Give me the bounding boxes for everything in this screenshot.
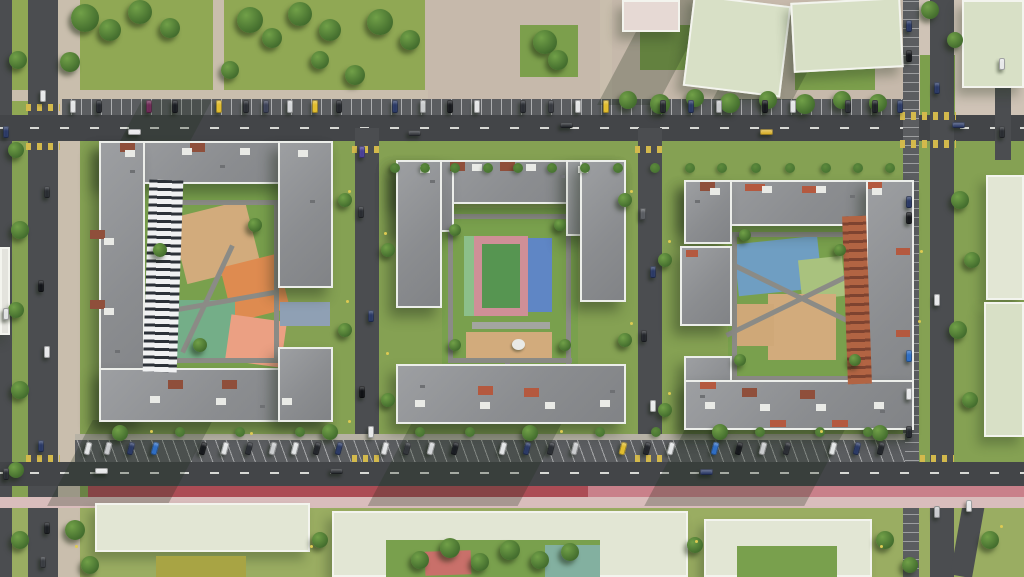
bush <box>295 427 305 437</box>
crosswalk <box>635 455 665 462</box>
terracotta-parapet <box>832 420 848 427</box>
car <box>40 556 46 568</box>
tree <box>947 32 963 48</box>
flower-dot <box>346 300 349 303</box>
bush <box>420 163 430 173</box>
tree <box>962 392 978 408</box>
roof-box <box>182 148 192 155</box>
roof-vent <box>850 195 855 198</box>
tree <box>400 30 420 50</box>
crosswalk <box>26 455 60 462</box>
mid-block-wing-south <box>396 364 626 424</box>
car <box>330 468 343 474</box>
terracotta-parapet <box>686 250 698 257</box>
tree <box>60 52 80 72</box>
car <box>216 100 222 113</box>
tree <box>734 354 746 366</box>
entrance-canopy <box>800 390 815 399</box>
car <box>368 426 374 438</box>
tree <box>559 339 571 351</box>
car <box>44 346 50 358</box>
roof-vent <box>560 175 565 178</box>
flower-dot <box>560 430 563 433</box>
roof-vent <box>310 200 315 203</box>
bush <box>717 163 727 173</box>
car <box>3 468 9 480</box>
flower-dot <box>820 430 823 433</box>
roof-box <box>705 402 715 409</box>
terracotta-parapet <box>770 420 786 427</box>
street-between-blocks-2 <box>638 128 662 468</box>
flower-dot <box>75 545 78 548</box>
tree <box>712 424 728 440</box>
car <box>96 100 102 113</box>
bush <box>580 163 590 173</box>
car <box>906 20 912 32</box>
playground-bluegray-west <box>280 302 330 326</box>
school-building-pink <box>622 0 680 32</box>
roof-vent <box>220 165 225 168</box>
tree <box>319 19 341 41</box>
tree <box>531 551 549 569</box>
crosswalk <box>352 455 382 462</box>
flower-dot <box>150 430 153 433</box>
right-edge-building <box>984 302 1024 437</box>
tree <box>548 50 568 70</box>
bush <box>547 163 557 173</box>
terracotta-parapet <box>896 248 910 255</box>
car <box>3 126 9 138</box>
bush <box>465 427 475 437</box>
tree <box>949 321 967 339</box>
tree <box>739 229 751 241</box>
car <box>263 100 269 113</box>
bush <box>595 427 605 437</box>
tree <box>449 224 461 236</box>
tree <box>440 538 460 558</box>
roof-box <box>874 402 884 409</box>
tree <box>193 338 207 352</box>
car <box>38 280 44 292</box>
car <box>952 122 965 128</box>
bush <box>613 163 623 173</box>
bush <box>751 163 761 173</box>
tree <box>658 403 672 417</box>
tree <box>338 193 352 207</box>
right-edge-building <box>986 175 1024 300</box>
car <box>906 212 912 224</box>
roof-box <box>472 164 482 171</box>
west-block-wing-east-upper <box>278 141 333 288</box>
car <box>312 100 318 113</box>
car <box>40 90 46 102</box>
tree <box>221 61 239 79</box>
flower-dot <box>918 320 921 323</box>
tree <box>345 65 365 85</box>
bush <box>821 163 831 173</box>
roof-box <box>480 402 490 409</box>
tree <box>9 51 27 69</box>
flower-dot <box>384 232 387 235</box>
roof-vent <box>420 385 425 388</box>
tree <box>65 520 85 540</box>
roof-box <box>104 308 114 315</box>
tree <box>8 462 24 478</box>
school-building <box>790 0 904 73</box>
flower-dot <box>668 392 671 395</box>
west-block-tower-facade <box>143 179 184 372</box>
car <box>999 58 1005 70</box>
flower-dot <box>668 240 671 243</box>
corner-building-top-right <box>962 0 1024 88</box>
car <box>650 266 656 278</box>
car <box>243 100 249 113</box>
car <box>44 522 50 534</box>
crosswalk <box>352 146 382 153</box>
bush <box>650 163 660 173</box>
car <box>548 100 554 113</box>
bush <box>651 427 661 437</box>
tree <box>128 0 152 24</box>
car <box>906 196 912 208</box>
car <box>688 100 694 113</box>
car <box>640 208 646 220</box>
crosswalk <box>900 140 956 148</box>
car <box>650 400 656 412</box>
entrance-canopy <box>90 300 105 309</box>
courtyard-path <box>448 358 572 363</box>
tree <box>951 191 969 209</box>
roof-box <box>150 396 160 403</box>
west-block-wing-east-lower <box>278 347 333 422</box>
flower-dot <box>880 545 883 548</box>
roof-box <box>240 148 250 155</box>
roof-box <box>710 188 720 195</box>
playground-sand-east <box>768 294 836 360</box>
flower-dot <box>348 190 351 193</box>
tree <box>658 253 672 267</box>
flower-dot <box>695 540 698 543</box>
roof-box <box>760 404 770 411</box>
tree <box>964 252 980 268</box>
bush <box>513 163 523 173</box>
roof-box <box>816 186 826 193</box>
entrance-canopy <box>168 380 183 389</box>
car <box>408 130 421 136</box>
car <box>934 506 940 518</box>
terracotta-parapet <box>700 382 716 389</box>
bush <box>235 427 245 437</box>
car <box>172 100 178 113</box>
car <box>128 129 141 135</box>
tree <box>11 221 29 239</box>
flower-dot <box>348 420 351 423</box>
roof-vent <box>115 350 120 353</box>
tree <box>471 553 489 571</box>
tree <box>112 425 128 441</box>
car <box>660 100 666 113</box>
tree <box>81 556 99 574</box>
car <box>474 100 480 113</box>
flower-dot <box>250 432 253 435</box>
car <box>287 100 293 113</box>
sport-court-blue <box>528 238 552 312</box>
tree <box>921 1 939 19</box>
car <box>716 100 722 113</box>
roof-box <box>298 150 308 157</box>
tree <box>153 243 167 257</box>
kindergarten-west <box>95 503 310 552</box>
roof-box <box>104 238 114 245</box>
car <box>872 100 878 113</box>
tree <box>367 9 393 35</box>
roof-box <box>125 150 135 157</box>
bush <box>755 427 765 437</box>
car <box>641 330 647 342</box>
terracotta-parapet <box>896 330 910 337</box>
bush <box>685 163 695 173</box>
tree <box>411 551 429 569</box>
crosswalk <box>26 104 60 111</box>
tree <box>322 424 338 440</box>
car <box>560 122 573 128</box>
car <box>700 469 713 475</box>
tree <box>522 425 538 441</box>
flower-dot <box>310 545 313 548</box>
car <box>603 100 609 113</box>
bush <box>175 427 185 437</box>
play-dome-tent <box>512 339 525 350</box>
roof-vent <box>130 170 135 173</box>
entrance-canopy <box>478 386 493 395</box>
tree <box>160 18 180 38</box>
car <box>359 146 365 158</box>
car <box>906 388 912 400</box>
roof-box <box>545 402 555 409</box>
car <box>906 50 912 62</box>
bench-row <box>472 322 550 329</box>
roof-vent <box>700 395 705 398</box>
car <box>934 294 940 306</box>
roof-box <box>872 188 882 195</box>
car <box>336 100 342 113</box>
tree <box>981 531 999 549</box>
car <box>95 468 108 474</box>
roof-vent <box>260 405 265 408</box>
flower-dot <box>920 250 923 253</box>
bush <box>785 163 795 173</box>
street-between-blocks-1 <box>355 128 379 468</box>
tree <box>312 532 328 548</box>
flower-dot <box>1000 525 1003 528</box>
car <box>762 100 768 113</box>
tree <box>554 219 566 231</box>
tree <box>8 302 24 318</box>
kindergarten-east-courtyard <box>737 546 837 577</box>
car <box>447 100 453 113</box>
entrance-canopy <box>742 388 757 397</box>
roof-vent <box>430 180 435 183</box>
bush <box>450 163 460 173</box>
tree <box>11 531 29 549</box>
tree <box>338 323 352 337</box>
tree <box>311 51 329 69</box>
mid-block-wing-west <box>396 160 442 308</box>
entrance-canopy <box>190 143 205 152</box>
tree <box>381 243 395 257</box>
car <box>368 310 374 322</box>
tree <box>237 7 263 33</box>
entrance-canopy <box>222 380 237 389</box>
tree <box>872 425 888 441</box>
tree <box>876 531 894 549</box>
car <box>934 82 940 94</box>
tree <box>288 2 312 26</box>
school-building <box>683 0 791 98</box>
crosswalk <box>635 146 665 153</box>
east-block-wing-west-mid <box>680 246 732 326</box>
car <box>906 426 912 438</box>
car <box>70 100 76 113</box>
bush <box>885 163 895 173</box>
roof-vent <box>610 390 615 393</box>
bush <box>853 163 863 173</box>
roof-box <box>600 400 610 407</box>
tree <box>500 540 520 560</box>
tree <box>795 94 815 114</box>
car <box>906 350 912 362</box>
sport-field-green <box>482 244 520 308</box>
car <box>966 500 972 512</box>
flower-dot <box>386 352 389 355</box>
entrance-canopy <box>90 230 105 239</box>
car <box>999 126 1005 138</box>
roof-box <box>282 398 292 405</box>
car <box>845 100 851 113</box>
car <box>575 100 581 113</box>
crosswalk <box>26 143 60 150</box>
kindergarten-west-field <box>156 556 246 577</box>
bush <box>415 427 425 437</box>
tree <box>262 28 282 48</box>
car <box>38 440 44 452</box>
sport-court-lightgreen <box>464 236 474 316</box>
path-top-vertical <box>213 0 224 92</box>
roof-box <box>526 164 536 171</box>
roof-box <box>216 398 226 405</box>
tree <box>561 543 579 561</box>
bush <box>390 163 400 173</box>
bush <box>483 163 493 173</box>
tree <box>619 91 637 109</box>
car <box>358 206 364 218</box>
entrance-canopy <box>524 388 539 397</box>
tree <box>849 354 861 366</box>
crosswalk <box>900 112 956 120</box>
courtyard-path <box>448 214 570 219</box>
left-edge-building <box>0 247 10 335</box>
tree <box>71 4 99 32</box>
roof-vent <box>695 200 700 203</box>
tree <box>11 381 29 399</box>
car <box>392 100 398 113</box>
car <box>420 100 426 113</box>
roof-vent <box>880 410 885 413</box>
car <box>897 100 903 113</box>
mid-block-wing-east <box>580 160 626 302</box>
roof-box <box>415 400 425 407</box>
bush <box>863 427 873 437</box>
tree <box>8 142 24 158</box>
car <box>44 186 50 198</box>
tree <box>618 193 632 207</box>
aerial-site-render <box>0 0 1024 577</box>
roof-box <box>762 186 772 193</box>
car <box>790 100 796 113</box>
tree <box>902 557 918 573</box>
car <box>520 100 526 113</box>
tree <box>618 333 632 347</box>
crosswalk <box>920 455 954 462</box>
playground-sand-mid <box>466 332 552 358</box>
car <box>3 308 9 320</box>
tree <box>99 19 121 41</box>
car <box>146 100 152 113</box>
car <box>359 386 365 398</box>
flower-dot <box>630 322 633 325</box>
tree <box>720 93 740 113</box>
tree <box>248 218 262 232</box>
tree <box>449 339 461 351</box>
flower-dot <box>630 190 633 193</box>
roof-box <box>816 404 826 411</box>
tree <box>381 393 395 407</box>
car <box>760 129 773 135</box>
tree <box>834 244 846 256</box>
